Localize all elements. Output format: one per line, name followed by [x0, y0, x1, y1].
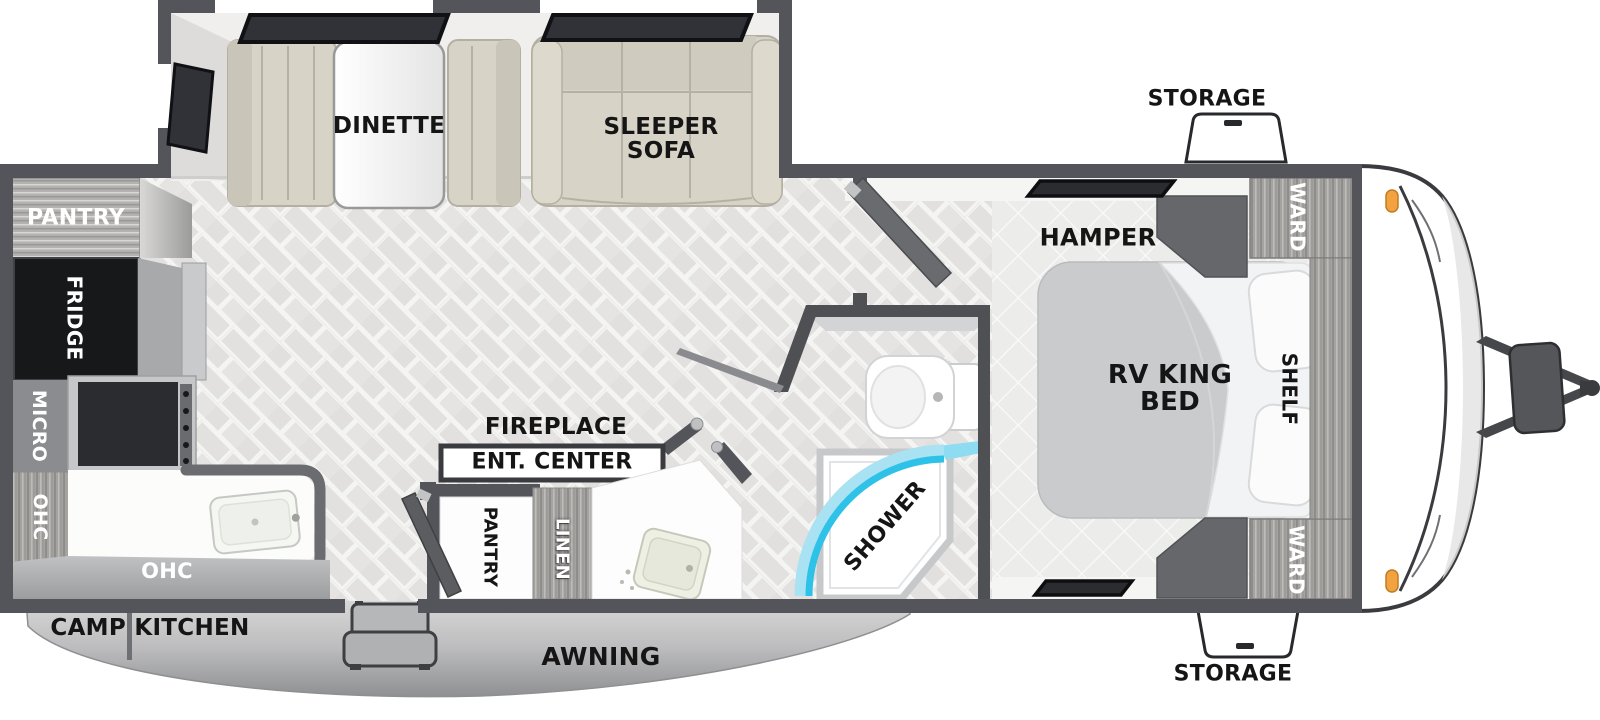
label-sleeper-sofa: SLEEPER SOFA	[603, 116, 718, 164]
label-linen: LINEN	[552, 518, 571, 580]
wall-bottom-right	[418, 599, 1362, 613]
label-ent-center: ENT. CENTER	[472, 452, 633, 475]
label-ohc-lower: OHC	[141, 561, 193, 583]
label-rv-king-bed-line1: RV KING	[1108, 362, 1232, 389]
label-fridge: FRIDGE	[64, 276, 85, 361]
label-ward-top: WARD	[1287, 182, 1308, 252]
hitch-ball	[1584, 380, 1600, 396]
floorplan-drawing	[0, 0, 1600, 720]
propane-cover	[1509, 342, 1565, 433]
slide-out	[158, 0, 792, 208]
label-pantry-rear: PANTRY	[27, 208, 125, 231]
label-pantry-hall: PANTRY	[480, 507, 499, 588]
slide-window-side	[168, 64, 213, 152]
wall-front	[1352, 164, 1362, 613]
slide-window-left	[240, 15, 448, 42]
label-rv-king-bed-line2: BED	[1108, 389, 1232, 416]
label-ohc-upper: OHC	[29, 494, 49, 541]
front-cap	[1358, 166, 1483, 611]
label-storage-bottom: STORAGE	[1174, 664, 1293, 687]
label-shelf: SHELF	[1279, 353, 1300, 426]
marker-light-bottom	[1386, 570, 1398, 592]
bed-shelf	[1310, 258, 1358, 519]
label-storage-top: STORAGE	[1148, 89, 1267, 112]
wall-top-left	[6, 164, 171, 178]
label-micro: MICRO	[28, 390, 48, 462]
bedroom-window-top	[1028, 181, 1174, 196]
bedroom-window-bottom	[1035, 581, 1132, 595]
slide-window-right	[543, 15, 751, 40]
label-awning: AWNING	[541, 644, 660, 670]
dinette-bench-left	[228, 40, 336, 206]
label-rv-king-bed: RV KING BED	[1108, 362, 1232, 416]
kitchen-sink	[209, 489, 302, 554]
hitch-tongue	[1476, 336, 1600, 438]
wall-rear	[0, 164, 13, 613]
wall-bottom-left	[6, 599, 345, 613]
storage-door-bottom	[1198, 611, 1298, 657]
label-camp-kitchen: CAMP KITCHEN	[50, 617, 249, 641]
label-dinette: DINETTE	[333, 115, 445, 139]
range-stove	[68, 376, 196, 472]
label-sleeper-sofa-line1: SLEEPER	[603, 116, 718, 140]
label-ward-bottom: WARD	[1286, 525, 1307, 595]
label-hamper: HAMPER	[1040, 226, 1157, 251]
storage-door-top	[1186, 114, 1286, 162]
dinette-bench-right	[448, 40, 520, 206]
label-fireplace: FIREPLACE	[485, 416, 627, 440]
label-sleeper-sofa-line2: SOFA	[603, 140, 718, 164]
marker-light-top	[1386, 190, 1398, 212]
toilet	[866, 356, 980, 438]
rv-floorplan: STORAGE STORAGE WARD WARD SHELF RV KING …	[0, 0, 1600, 720]
